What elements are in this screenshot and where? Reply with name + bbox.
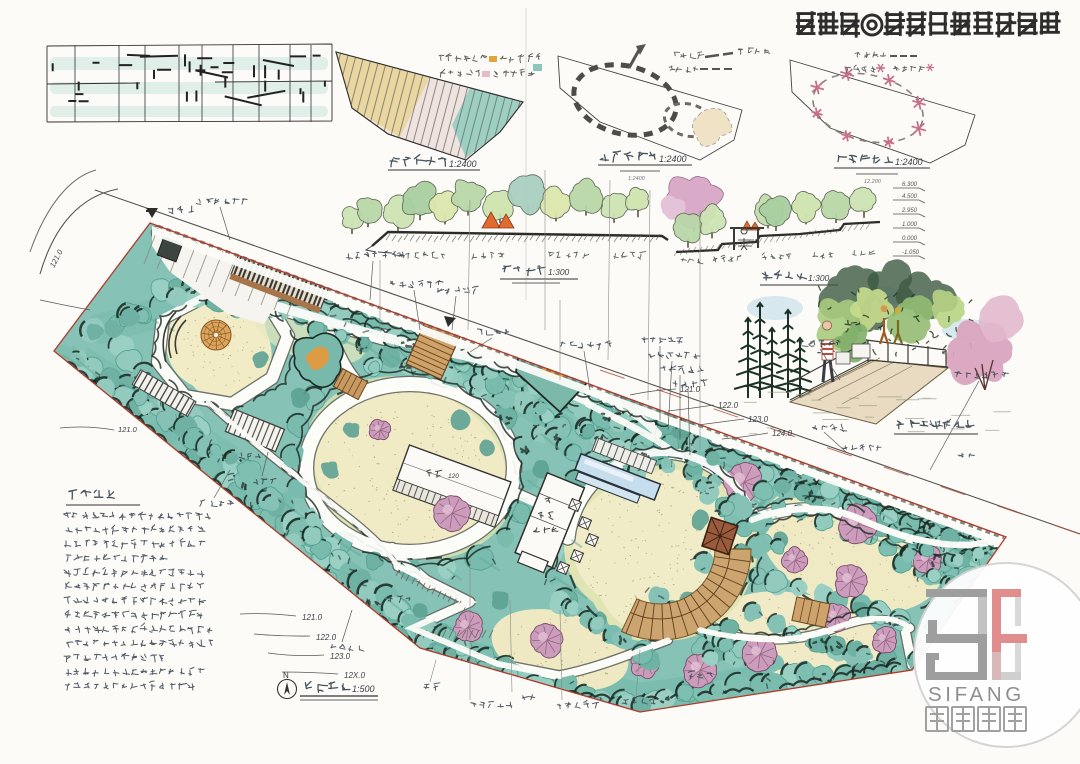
svg-text:122.0: 122.0 [718, 401, 739, 410]
svg-text:0.000: 0.000 [902, 236, 918, 242]
svg-text:121.0: 121.0 [680, 385, 701, 394]
svg-text:6.300: 6.300 [902, 182, 918, 188]
svg-text:1:300: 1:300 [808, 273, 830, 283]
svg-text:N: N [283, 671, 289, 680]
svg-text:1.000: 1.000 [902, 222, 918, 228]
svg-text:12X.0: 12X.0 [344, 671, 365, 680]
svg-text:SIFANG: SIFANG [928, 683, 1025, 706]
svg-text:4.500: 4.500 [902, 194, 918, 200]
svg-text:1:2400: 1:2400 [659, 154, 687, 164]
svg-text:12.200: 12.200 [864, 179, 882, 185]
svg-text:1:2400: 1:2400 [895, 157, 923, 167]
svg-text:1:2400: 1:2400 [628, 176, 646, 182]
svg-text:121.0: 121.0 [302, 613, 323, 622]
svg-text:1:2400: 1:2400 [449, 159, 477, 169]
svg-text:124.0: 124.0 [772, 429, 793, 438]
svg-text:121.0: 121.0 [118, 425, 138, 434]
svg-text:1:500: 1:500 [352, 684, 375, 694]
svg-text:122.0: 122.0 [316, 633, 337, 642]
svg-text:120: 120 [448, 473, 459, 480]
svg-text:1:300: 1:300 [548, 267, 570, 277]
svg-text:123.0: 123.0 [330, 652, 351, 661]
svg-text:2.950: 2.950 [901, 208, 918, 214]
svg-text:-1.050: -1.050 [902, 250, 920, 256]
svg-text:123.0: 123.0 [748, 415, 769, 424]
